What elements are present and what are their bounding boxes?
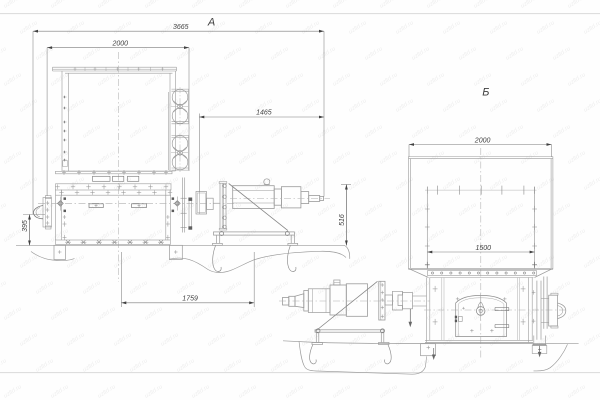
svg-text:3665: 3665	[173, 24, 189, 31]
svg-text:1759: 1759	[182, 296, 198, 303]
svg-text:395: 395	[22, 220, 29, 232]
svg-text:516: 516	[339, 214, 346, 226]
svg-text:2000: 2000	[112, 40, 129, 47]
svg-text:А: А	[207, 17, 215, 29]
svg-text:Б: Б	[482, 86, 489, 98]
svg-text:1465: 1465	[256, 110, 272, 117]
svg-text:1500: 1500	[476, 245, 492, 252]
svg-text:2000: 2000	[474, 137, 491, 144]
